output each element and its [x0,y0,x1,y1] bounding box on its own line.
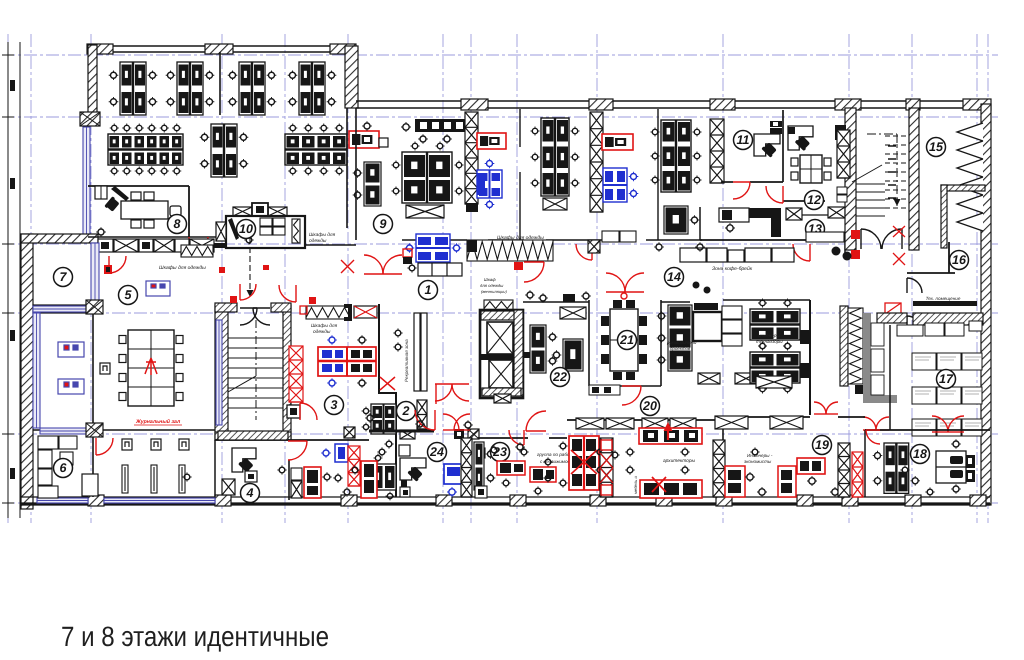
svg-text:Зона кофе-брейк: Зона кофе-брейк [712,266,753,272]
svg-text:Тех. помещение: Тех. помещение [926,296,961,301]
svg-text:экономисты: экономисты [744,459,772,464]
svg-text:21: 21 [619,333,634,347]
svg-text:18: 18 [913,447,927,461]
svg-text:одежды: одежды [309,238,327,244]
svg-text:15: 15 [929,140,944,154]
svg-text:20: 20 [642,399,657,413]
svg-text:7: 7 [60,270,68,284]
svg-text:Шкаф: Шкаф [484,277,496,282]
svg-text:10: 10 [239,222,253,236]
svg-text:5: 5 [125,288,133,302]
svg-text:16: 16 [952,253,967,267]
svg-text:архитекторы: архитекторы [663,459,696,464]
svg-text:Журнальный зал: Журнальный зал [135,419,181,425]
svg-text:для одежды: для одежды [480,283,503,288]
svg-text:22: 22 [552,370,567,384]
svg-text:проектов: проектов [670,346,691,351]
svg-text:Рекреативная зона: Рекреативная зона [404,339,409,382]
svg-text:(вентиляции): (вентиляции) [481,289,507,294]
svg-text:Инженеры -: Инженеры - [747,453,773,458]
svg-text:14: 14 [667,270,681,284]
svg-text:17: 17 [939,372,954,386]
svg-text:11: 11 [737,133,750,147]
svg-text:Шкафы для одежды: Шкафы для одежды [497,235,544,241]
svg-text:19: 19 [815,438,829,452]
svg-text:4: 4 [246,486,254,500]
svg-text:Шкафы для одежды: Шкафы для одежды [159,265,206,271]
svg-text:24: 24 [429,445,444,459]
svg-text:мебель и: мебель и [633,476,638,494]
svg-text:6: 6 [60,461,68,475]
svg-text:3: 3 [331,398,338,412]
svg-text:Шкафы для: Шкафы для [311,323,338,329]
svg-text:9: 9 [380,217,387,231]
svg-text:технадзоры: технадзоры [756,339,783,344]
svg-text:7 и 8 этажи идентичные: 7 и 8 этажи идентичные [61,621,329,652]
svg-text:8: 8 [174,217,181,231]
svg-text:одежды: одежды [313,329,331,335]
svg-text:1: 1 [425,283,432,297]
svg-text:2: 2 [402,404,410,418]
svg-text:инженеры: инженеры [758,333,780,338]
svg-text:Шкафы для: Шкафы для [309,232,336,238]
svg-text:12: 12 [807,193,821,207]
